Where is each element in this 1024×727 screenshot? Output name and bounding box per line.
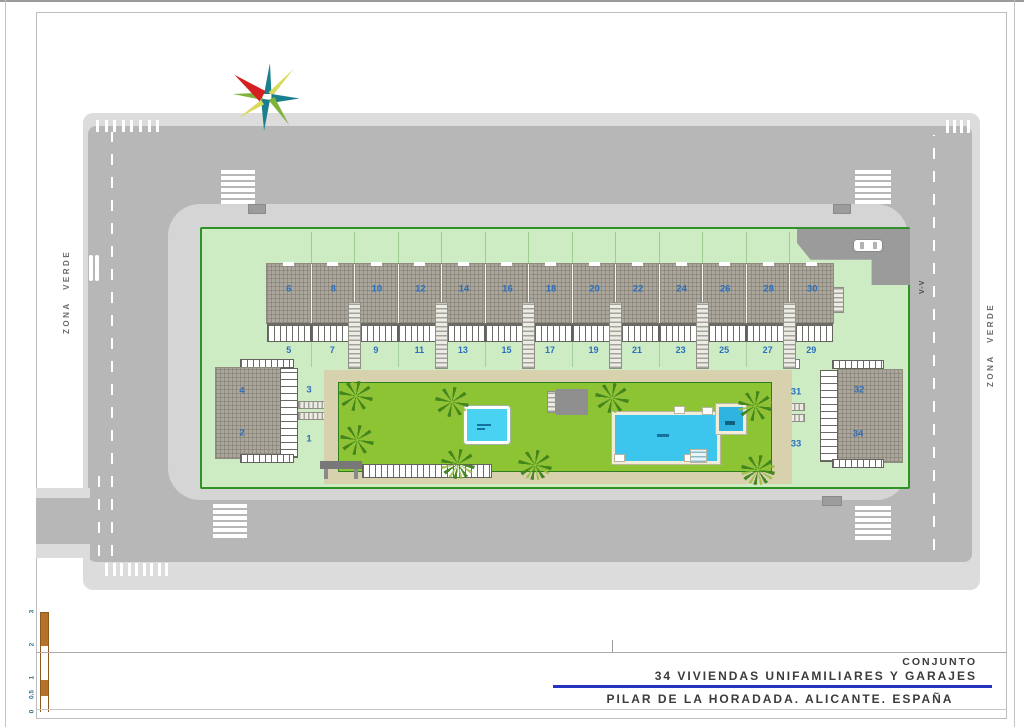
palm-tree-icon [741,455,775,485]
roof-unit-number: 18 [546,284,557,295]
palm-tree-icon [738,391,772,421]
building-unit-number: 2 [239,428,244,439]
crosswalk-stripe [855,530,891,534]
crosswalk-stripe [221,188,255,192]
row-house-roof: 14 [441,264,485,323]
curb-tick [143,563,146,576]
building-unit-number: 32 [854,385,865,396]
shared-stairs [435,302,448,369]
row-house-terrace [615,323,659,342]
curb-tick [960,120,963,133]
curb-tick [105,120,108,132]
row-house-roof: 10 [354,264,398,323]
row-house-terrace [528,323,572,342]
crosswalk-stripe [855,182,891,186]
curb-tick [158,563,161,576]
equipment-pad [556,389,588,415]
roof-vent [545,262,556,266]
crosswalk-stripe [213,522,247,526]
row-house-roof: 18 [528,264,572,323]
curb-tick [953,120,956,133]
row-house-roof: 26 [702,264,746,323]
left-building-stairs [298,412,325,420]
lane-dash-left-junction [98,472,100,556]
roof-vent [414,262,425,266]
rear-garden-divider [354,232,355,264]
garden-unit-number: 27 [763,345,773,355]
palm-tree-icon [441,449,475,479]
parcel: 6587109121114131615181720192221242326252… [200,227,910,489]
curb-tick [156,120,159,132]
palm-tree-icon [595,383,629,413]
curb-tick [105,563,108,576]
roof-vent [806,262,817,266]
crosswalk-stripe [855,194,891,198]
scale-tick-label: 2 [29,637,36,653]
rear-garden-divider [615,232,616,264]
zona-verde-label-right: ZONA VERDE [986,292,995,387]
garden-unit-number: 17 [545,345,555,355]
curb-tick [148,120,151,132]
zona-verde-label-left: ZONA VERDE [62,244,71,334]
curb-tick [96,120,99,132]
crosswalk-stripe [855,518,891,522]
front-garden-divider [485,342,486,367]
crosswalk-stripe [213,534,247,538]
scale-tick-label: 3 [29,604,36,620]
roof-vent [371,262,382,266]
row-house-terrace [789,323,833,342]
rear-garden-divider [398,232,399,264]
canopy-post [324,469,328,479]
roof-vent [676,262,687,266]
garden-unit-number: 21 [632,345,642,355]
front-garden-divider [398,342,399,367]
garden-unit-number: 19 [589,345,599,355]
scale-segment [41,613,48,646]
curb-tick [967,120,970,133]
row-house-terrace [354,323,398,342]
utility-box [248,204,266,214]
utility-box [833,204,851,214]
crosswalk-stripe [221,200,255,204]
garden-unit-number: 15 [501,345,511,355]
parking-mark [95,255,99,281]
roof-unit-number: 14 [459,284,470,295]
roof-vent [283,262,294,266]
left-building-roof [216,368,280,458]
parking-mark [89,255,93,281]
row-house-terrace [441,323,485,342]
crosswalk-stripe [855,170,891,174]
front-garden-divider [746,342,747,367]
curb-tick [139,120,142,132]
entrance-stairs [833,287,844,313]
curb-tick [150,563,153,576]
roof-vent [719,262,730,266]
palm-tree-icon [435,387,469,417]
rear-garden-divider [441,232,442,264]
title-accent-line [553,685,992,688]
crosswalk-stripe [855,512,891,516]
site-plan: 6587109121114131615181720192221242326252… [0,0,1024,727]
plan-sheet: { "title_block": { "line1": "CONJUNTO", … [0,0,1024,727]
crosswalk-stripe [213,528,247,532]
utility-box [822,496,842,506]
roof-unit-number: 24 [676,284,687,295]
scale-segment [41,696,48,713]
building-unit-number: 4 [239,386,244,397]
roof-unit-number: 26 [720,284,731,295]
scale-tick-label: 0.5 [29,687,36,703]
crosswalk-stripe [221,176,255,180]
roof-unit-number: 28 [763,284,774,295]
row-house-roof: 30 [789,264,833,323]
rear-garden-divider [572,232,573,264]
row-house-terrace [267,323,311,342]
pergola-strip [240,454,294,463]
crosswalk-stripe [855,536,891,540]
title-line-1: CONJUNTO [553,656,977,668]
lane-dash-right-road [933,135,935,550]
rear-garden-divider [485,232,486,264]
left-building-terrace [280,368,298,458]
row-house-roof: 6 [267,264,311,323]
rear-garden-divider [659,232,660,264]
palm-tree-icon [339,381,373,411]
roof-unit-number: 8 [331,284,336,295]
curb-tick [113,120,116,132]
title-block-divider-v [612,640,613,652]
shared-stairs [348,302,361,369]
roof-unit-number: 22 [633,284,644,295]
title-block-bottom-line [36,709,1007,710]
rear-garden-divider [311,232,312,264]
palm-tree-icon [518,450,552,480]
kids-pool [464,406,510,444]
row-house-roof: 22 [615,264,659,323]
right-building-terrace [820,370,838,462]
building-unit-number: 33 [791,439,802,450]
row-house-terrace [702,323,746,342]
crosswalk-stripe [221,170,255,174]
curb-tick [946,120,949,133]
entrance-canopy [320,461,362,469]
road-stub-asphalt [36,498,94,544]
front-garden-divider [311,342,312,367]
roof-unit-number: 16 [502,284,513,295]
title-line-2: 34 VIVIENDAS UNIFAMILIARES Y GARAJES [553,669,977,683]
title-line-3: PILAR DE LA HORADADA. ALICANTE. ESPAÑA [553,692,1007,706]
roof-vent [632,262,643,266]
curb-tick [135,563,138,576]
rear-garden-divider [528,232,529,264]
front-garden-divider [572,342,573,367]
pergola-strip [832,360,884,369]
crosswalk-stripe [213,510,247,514]
scale-tick-label: 0 [29,704,36,720]
roof-vent [458,262,469,266]
right-building-roof [838,370,902,462]
garden-unit-number: 7 [330,345,335,355]
garden-unit-number: 13 [458,345,468,355]
curb-tick [120,563,123,576]
roof-unit-number: 6 [286,284,291,295]
roof-vent [327,262,338,266]
crosswalk-stripe [855,188,891,192]
pergola-strip [832,459,884,468]
pool-skimmer [614,454,625,462]
rear-garden-divider [746,232,747,264]
compass-rose-icon [228,60,306,134]
curb-tick [113,563,116,576]
scale-segment [41,680,48,697]
crosswalk-stripe [213,504,247,508]
lane-dash-left-road [111,132,113,556]
canopy-post [354,469,358,479]
scale-bar [40,612,49,712]
section-mark-label: V-V [919,260,926,294]
crosswalk-stripe [855,506,891,510]
rear-garden-divider [789,232,790,264]
building-unit-number: 34 [853,429,864,440]
garden-unit-number: 5 [286,345,291,355]
building-unit-number: 3 [306,385,311,396]
curb-tick [165,563,168,576]
title-block-divider-h [36,652,1007,653]
roof-unit-number: 12 [415,284,426,295]
crosswalk-stripe [221,182,255,186]
scale-tick-label: 1 [29,670,36,686]
front-garden-divider [659,342,660,367]
garden-unit-number: 25 [719,345,729,355]
rear-garden-divider [702,232,703,264]
pergola-strip [240,359,294,368]
equipment-hatch [547,391,556,413]
pool-steps [690,449,707,463]
roof-vent [501,262,512,266]
building-unit-number: 31 [791,387,802,398]
palm-tree-icon [340,425,374,455]
garden-unit-number: 23 [676,345,686,355]
crosswalk-stripe [221,194,255,198]
crosswalk-stripe [855,176,891,180]
car-icon [853,239,883,252]
curb-tick [130,120,133,132]
curb-tick [122,120,125,132]
garden-unit-number: 11 [415,345,425,355]
garden-unit-number: 29 [806,345,816,355]
building-unit-number: 1 [306,434,311,445]
left-building-stairs [298,401,325,409]
roof-unit-number: 20 [589,284,600,295]
shared-stairs [783,302,796,369]
shared-stairs [696,302,709,369]
pool-skimmer [702,407,713,415]
roof-vent [763,262,774,266]
roof-vent [589,262,600,266]
crosswalk-stripe [213,516,247,520]
shared-stairs [609,302,622,369]
roof-unit-number: 30 [807,284,818,295]
crosswalk-stripe [855,200,891,204]
shared-stairs [522,302,535,369]
roof-unit-number: 10 [372,284,383,295]
garden-unit-number: 9 [373,345,378,355]
curb-tick [128,563,131,576]
pool-skimmer [674,406,685,414]
crosswalk-stripe [855,524,891,528]
